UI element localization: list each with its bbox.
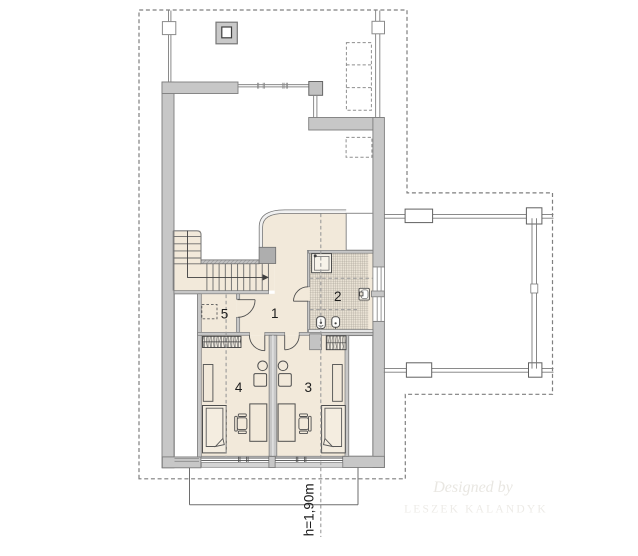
svg-text:3: 3	[304, 380, 312, 395]
svg-text:Designed by: Designed by	[432, 479, 513, 496]
svg-text:h=1,90m: h=1,90m	[302, 483, 317, 536]
svg-text:1: 1	[271, 306, 279, 321]
svg-text:LESZEK KALANDYK: LESZEK KALANDYK	[404, 504, 548, 516]
svg-text:5: 5	[221, 306, 229, 321]
svg-text:4: 4	[235, 380, 243, 395]
svg-text:2: 2	[334, 289, 342, 304]
